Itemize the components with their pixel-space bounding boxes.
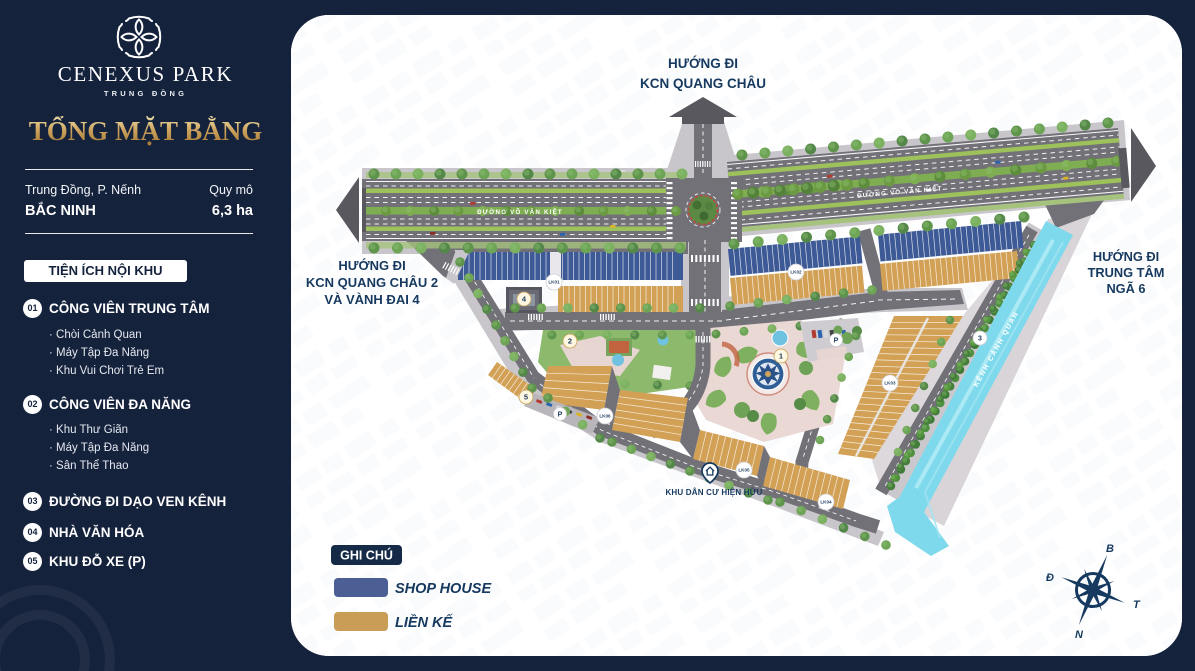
svg-text:Đ: Đ [1046, 572, 1054, 584]
svg-text:LK04: LK04 [820, 500, 832, 505]
svg-text:N: N [1075, 629, 1084, 641]
svg-text:LK06: LK06 [599, 414, 611, 419]
svg-text:1: 1 [779, 352, 783, 361]
svg-text:GHI CHÚ: GHI CHÚ [340, 548, 393, 563]
svg-text:2: 2 [568, 337, 572, 346]
svg-text:KCN QUANG CHÂU 2: KCN QUANG CHÂU 2 [306, 275, 438, 290]
svg-text:NGÃ 6: NGÃ 6 [1106, 281, 1145, 296]
svg-text:KHU DÂN CƯ HIỆN HỮU: KHU DÂN CƯ HIỆN HỮU [665, 488, 762, 497]
svg-text:VÀ VÀNH ĐAI 4: VÀ VÀNH ĐAI 4 [324, 292, 420, 307]
svg-text:P: P [558, 412, 563, 419]
svg-text:LK03: LK03 [884, 381, 896, 386]
svg-text:5: 5 [524, 393, 528, 402]
svg-text:SHOP HOUSE: SHOP HOUSE [395, 581, 492, 597]
svg-text:LK05: LK05 [738, 468, 750, 473]
svg-text:3: 3 [978, 336, 982, 343]
svg-text:HƯỚNG ĐI: HƯỚNG ĐI [1093, 249, 1159, 264]
svg-text:LIỀN KẾ: LIỀN KẾ [395, 613, 454, 631]
svg-text:HƯỚNG ĐI: HƯỚNG ĐI [338, 258, 405, 273]
svg-text:KCN QUANG CHÂU: KCN QUANG CHÂU [640, 76, 766, 91]
svg-text:HƯỚNG ĐI: HƯỚNG ĐI [668, 56, 738, 71]
svg-text:ĐƯỜNG VÕ VĂN KIỆT: ĐƯỜNG VÕ VĂN KIỆT [477, 208, 563, 216]
svg-text:LK01: LK01 [548, 280, 560, 285]
svg-text:B: B [1106, 543, 1114, 555]
svg-text:LK02: LK02 [790, 270, 802, 275]
svg-text:TRUNG TÂM: TRUNG TÂM [1088, 265, 1165, 280]
svg-text:P: P [834, 338, 839, 345]
